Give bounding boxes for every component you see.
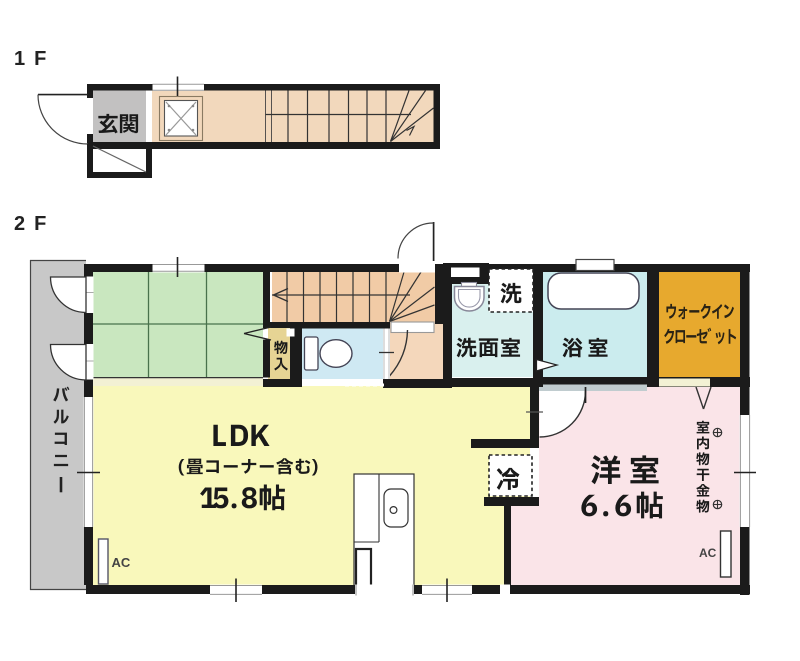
svg-text:1F: 1F bbox=[14, 48, 55, 70]
svg-text:2F: 2F bbox=[14, 213, 55, 235]
svg-text:AC: AC bbox=[112, 555, 131, 570]
svg-text:AC: AC bbox=[699, 546, 717, 560]
